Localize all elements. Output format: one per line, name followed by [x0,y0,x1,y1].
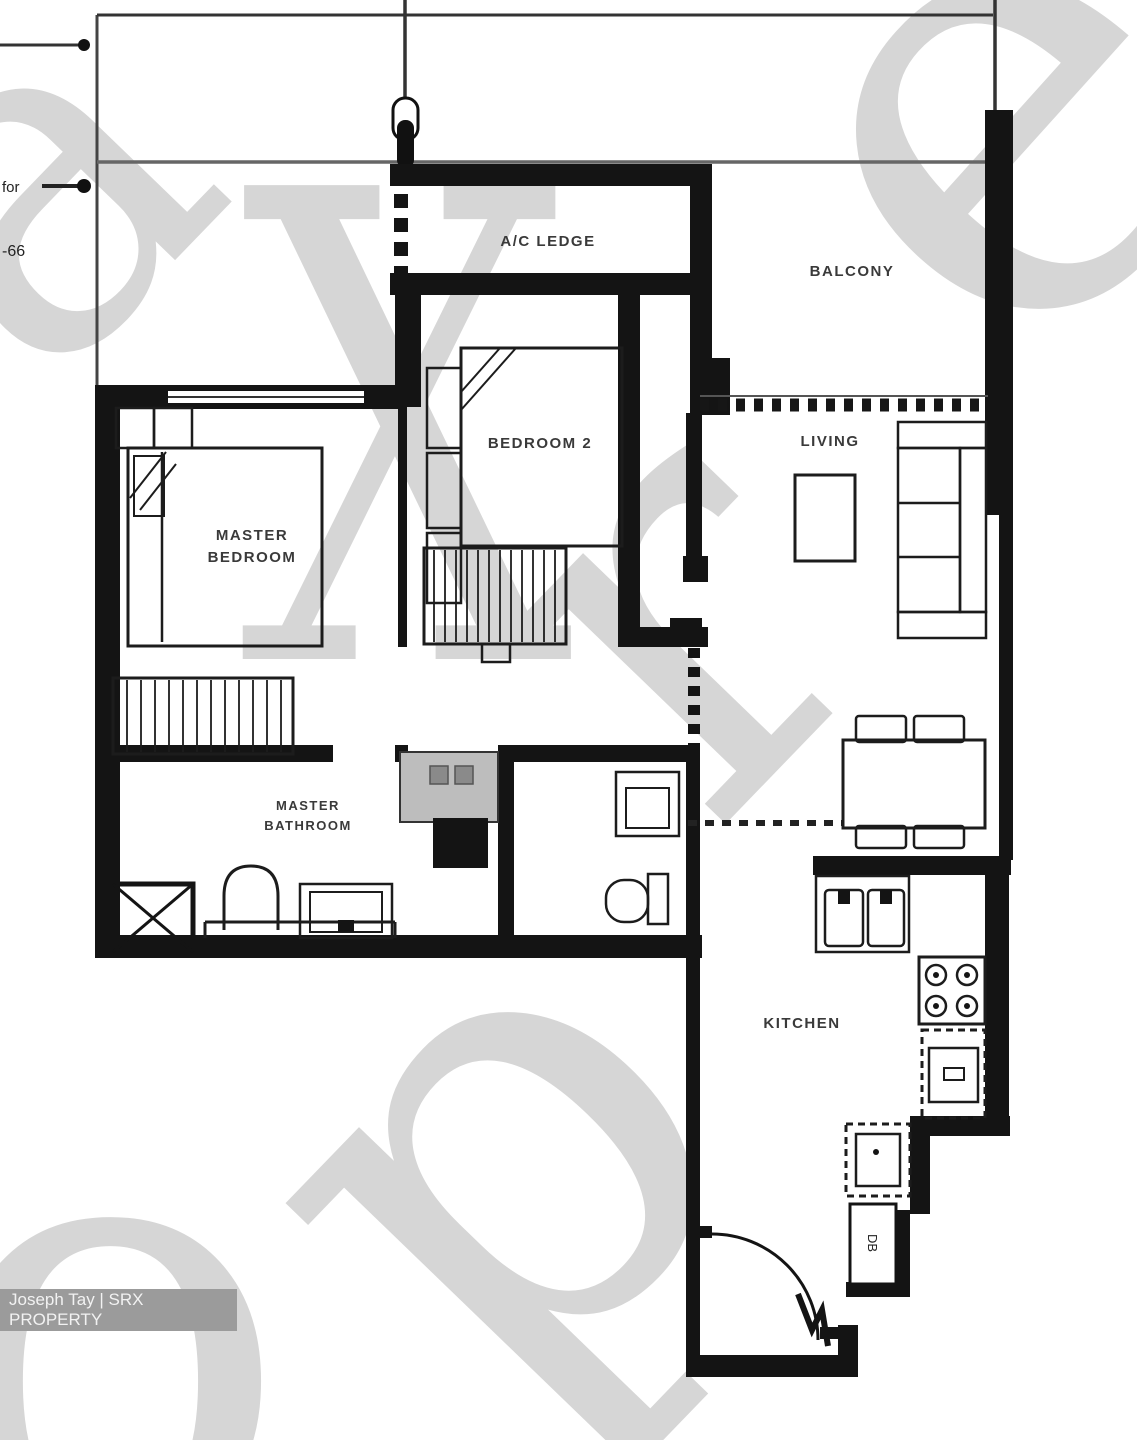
toilet-master-icon [224,866,278,930]
vanity-bath2 [616,772,679,836]
legend-symbol-icon [393,98,418,168]
left-note-for: for [2,179,20,196]
db-cabinet-label: DB [865,1234,880,1252]
label-living: LIVING [800,433,859,450]
label-master-line1: MASTER [216,527,288,544]
agent-watermark-badge: Joseph Tay | SRX PROPERTY [0,1289,237,1331]
label-bedroom2: BEDROOM 2 [488,435,592,452]
balcony-window-band [700,396,988,405]
toilet-bath2-icon [606,874,668,924]
bed-master [128,448,322,646]
dresser-bedroom2 [424,548,566,662]
db-cabinet: DB [850,1204,896,1284]
label-mbath-line1: MASTER [276,798,340,813]
sink-icon [816,876,909,952]
annotation-lines [0,0,995,385]
label-master-line2: BEDROOM [208,549,297,566]
tv-console [795,475,855,561]
wardrobe-master [113,678,293,754]
label-balcony: BALCONY [810,263,895,280]
floorplan-page: X e o p r a for -66 [0,0,1137,1440]
fridge-icon [846,1124,910,1196]
label-kitchen: KITCHEN [763,1015,840,1032]
entry-door-arc [712,1234,828,1346]
stove-icon [919,957,985,1024]
sofa [898,422,986,638]
bedside-shelves [116,408,192,448]
label-mbath-line2: BATHROOM [264,818,352,833]
oven-icon [922,1030,985,1118]
dashed-walls [401,170,694,748]
floorplan-drawing: for -66 [0,0,1137,1440]
washer-cabinet [400,752,498,868]
left-note-66: -66 [2,243,25,260]
vanity-master [205,884,395,938]
dining-set [843,716,985,848]
label-ac-ledge: A/C LEDGE [500,233,595,250]
